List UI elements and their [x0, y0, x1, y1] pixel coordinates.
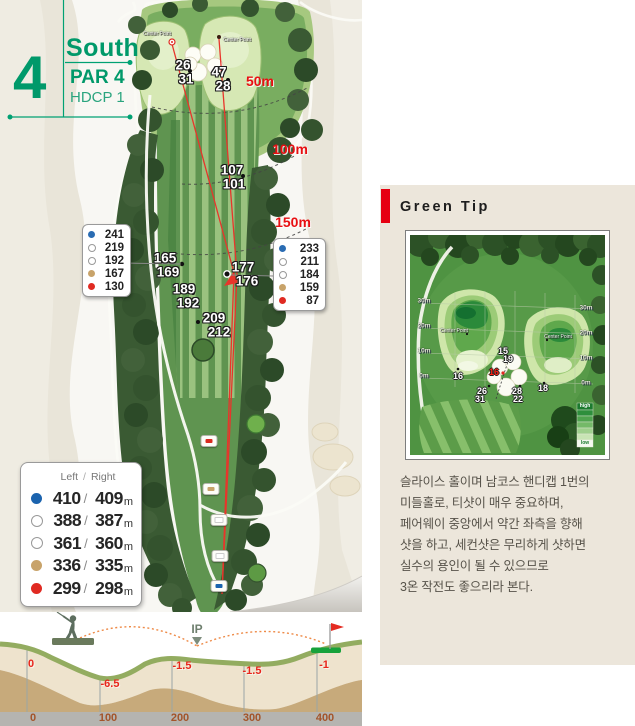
hole-guide-page: 4 South PAR 4 HDCP 1 Center Point Center… — [0, 0, 635, 726]
separator: / — [84, 491, 88, 506]
center-point-label: Center Point — [223, 37, 251, 43]
tee-marker-white — [212, 550, 229, 562]
fairway-point: 192 — [177, 296, 200, 311]
tee-dot-blue-icon — [279, 245, 286, 252]
center-point-label: Center Point — [143, 31, 171, 37]
fairway-point: 107 — [221, 163, 244, 178]
right-distance: 335 — [90, 555, 123, 576]
tee-dot-white-icon — [279, 258, 287, 266]
green-number-red: 16 — [489, 367, 499, 377]
elevation-value: -6.5 — [101, 678, 120, 690]
fairway-point: 212 — [208, 325, 231, 340]
tee-dot-blue-icon — [31, 493, 42, 504]
carry-value: 192 — [100, 255, 124, 267]
elevation-value: -1 — [319, 659, 329, 671]
legend-low-label: low — [581, 440, 589, 446]
right-distance: 409 — [90, 488, 123, 509]
fairway-tree — [192, 339, 214, 361]
unit-label: m — [124, 496, 133, 510]
course-name: South — [66, 34, 139, 63]
scale-label: 30m — [417, 298, 430, 305]
tee-dot-white-icon — [88, 244, 96, 252]
carry-value: 87 — [290, 295, 319, 307]
tee-dot-tan-icon — [88, 270, 95, 277]
elevation-value: -1.5 — [173, 660, 192, 672]
description-line: 미들홀로, 티샷이 매우 중요하며, — [400, 493, 630, 514]
green-carry-right-top: 47 — [211, 65, 226, 80]
fairway-tree — [248, 564, 266, 582]
description-line: 슬라이스 홀이며 남코스 핸디캡 1번의 — [400, 472, 630, 493]
center-point-label: Center Point — [544, 334, 572, 340]
description-line: 3온 작전도 좋으리라 본다. — [400, 577, 630, 598]
elevation-value: 0 — [28, 658, 34, 670]
carry-value: 211 — [291, 256, 319, 268]
unit-label: m — [124, 518, 133, 532]
separator: / — [84, 581, 88, 596]
left-distance: 410 — [48, 488, 81, 509]
par-label: PAR 4 — [70, 67, 125, 89]
scale-label: 20m — [579, 330, 592, 337]
tee-platform — [52, 638, 94, 645]
center-point-marker — [217, 35, 221, 39]
fairway-point: 165 — [154, 251, 177, 266]
carry-value: 219 — [100, 242, 124, 254]
tee-dot-white-icon — [88, 257, 96, 265]
scale-label: 0m — [581, 380, 590, 387]
table-row: 336/335m — [29, 555, 133, 578]
description-line: 실수의 용인이 될 수 있으므로 — [400, 556, 630, 577]
scale-label: 0m — [419, 373, 428, 380]
hole-description: 슬라이스 홀이며 남코스 핸디캡 1번의 미들홀로, 티샷이 매우 중요하며, … — [400, 472, 630, 598]
green-carry-right-bottom: 28 — [215, 79, 230, 94]
tee-distance-table: Left/Right 410/409m 388/387m 361/360m 33… — [20, 462, 142, 607]
left-distance: 361 — [49, 533, 81, 554]
tee-marker-red — [201, 435, 218, 447]
left-distance: 388 — [49, 510, 81, 531]
carry-legend-left: 241 219 192 167 130 — [82, 224, 131, 297]
green-bar — [311, 648, 341, 654]
right-distance: 360 — [91, 533, 123, 554]
fairway-point: 189 — [173, 282, 196, 297]
red-accent-bar — [381, 189, 390, 223]
carry-value: 241 — [99, 229, 124, 241]
tee-dot-red-icon — [31, 583, 42, 594]
tee-dot-white-icon — [31, 515, 43, 527]
fairway-point: 209 — [203, 311, 226, 326]
distance-tick: 0 — [30, 712, 36, 724]
legend-high-label: high — [580, 403, 591, 409]
scale-label: 10m — [579, 355, 592, 362]
hdcp-label: HDCP 1 — [70, 89, 125, 106]
green-number: 16 — [453, 371, 463, 381]
green-number: 22 — [513, 394, 523, 404]
table-row: 410/409m — [29, 487, 133, 510]
separator: / — [84, 536, 88, 551]
carry-value: 130 — [99, 281, 124, 293]
table-row: 299/298m — [29, 577, 133, 600]
left-distance: 336 — [48, 555, 81, 576]
distance-marker-50m: 50m — [246, 73, 274, 89]
fairway-point: 169 — [157, 265, 180, 280]
tee-dot-white-icon — [279, 271, 287, 279]
green-number: 18 — [538, 383, 548, 393]
green-number: 31 — [475, 394, 485, 404]
left-distance: 299 — [48, 578, 81, 599]
scale-label: 20m — [417, 323, 430, 330]
green-carry-left-top: 26 — [175, 58, 190, 73]
description-line: 페어웨이 중앙에서 약간 좌측을 향해 — [400, 514, 630, 535]
fairway-point: 177 — [232, 260, 255, 275]
distance-tick: 400 — [316, 712, 334, 724]
unit-label: m — [124, 541, 133, 555]
carry-value: 184 — [291, 269, 319, 281]
tee-dot-white-icon — [31, 537, 43, 549]
green-number: 19 — [503, 354, 513, 364]
scale-label: 10m — [417, 348, 430, 355]
scale-label: 30m — [579, 305, 592, 312]
separator: / — [84, 513, 88, 528]
carry-legend-right: 233 211 184 159 87 — [273, 238, 326, 311]
unit-label: m — [124, 586, 133, 600]
unit-label: m — [124, 563, 133, 577]
tee-table-header: Left/Right — [43, 471, 133, 483]
col-separator: / — [83, 471, 86, 483]
separator: / — [84, 558, 88, 573]
right-distance: 298 — [90, 578, 123, 599]
carry-value: 233 — [290, 243, 319, 255]
center-point-label: Center Point — [440, 328, 468, 334]
distance-marker-150m: 150m — [275, 214, 311, 230]
tee-dot-red-icon — [88, 283, 95, 290]
tee-dot-tan-icon — [279, 284, 286, 291]
green-carry-left-bottom: 31 — [178, 72, 193, 87]
tee-marker-tan — [203, 483, 220, 495]
tee-marker-blue — [211, 580, 228, 592]
tee-dot-red-icon — [279, 297, 286, 304]
tee-marker-white — [211, 514, 228, 526]
green-tip-title: Green Tip — [400, 199, 490, 215]
fairway-point: 176 — [236, 274, 259, 289]
col-right-label: Right — [91, 471, 116, 483]
right-green — [524, 307, 590, 385]
carry-value: 159 — [290, 282, 319, 294]
table-row: 388/387m — [29, 510, 133, 533]
tee-dot-tan-icon — [31, 560, 42, 571]
right-distance: 387 — [91, 510, 123, 531]
table-row: 361/360m — [29, 532, 133, 555]
col-left-label: Left — [61, 471, 79, 483]
fairway-point: 101 — [223, 177, 246, 192]
distance-tick: 300 — [243, 712, 261, 724]
distance-marker-100m: 100m — [272, 141, 308, 157]
carry-value: 167 — [99, 268, 124, 280]
description-line: 샷을 하고, 세컨샷은 무리하게 샷하면 — [400, 535, 630, 556]
distance-tick: 200 — [171, 712, 189, 724]
fairway-tree — [247, 415, 265, 433]
elevation-value: -1.5 — [243, 665, 262, 677]
tee-dot-blue-icon — [88, 231, 95, 238]
distance-tick: 100 — [99, 712, 117, 724]
hole-number: 4 — [13, 48, 46, 108]
ip-label: IP — [191, 622, 202, 636]
green-detail-art — [410, 235, 605, 455]
